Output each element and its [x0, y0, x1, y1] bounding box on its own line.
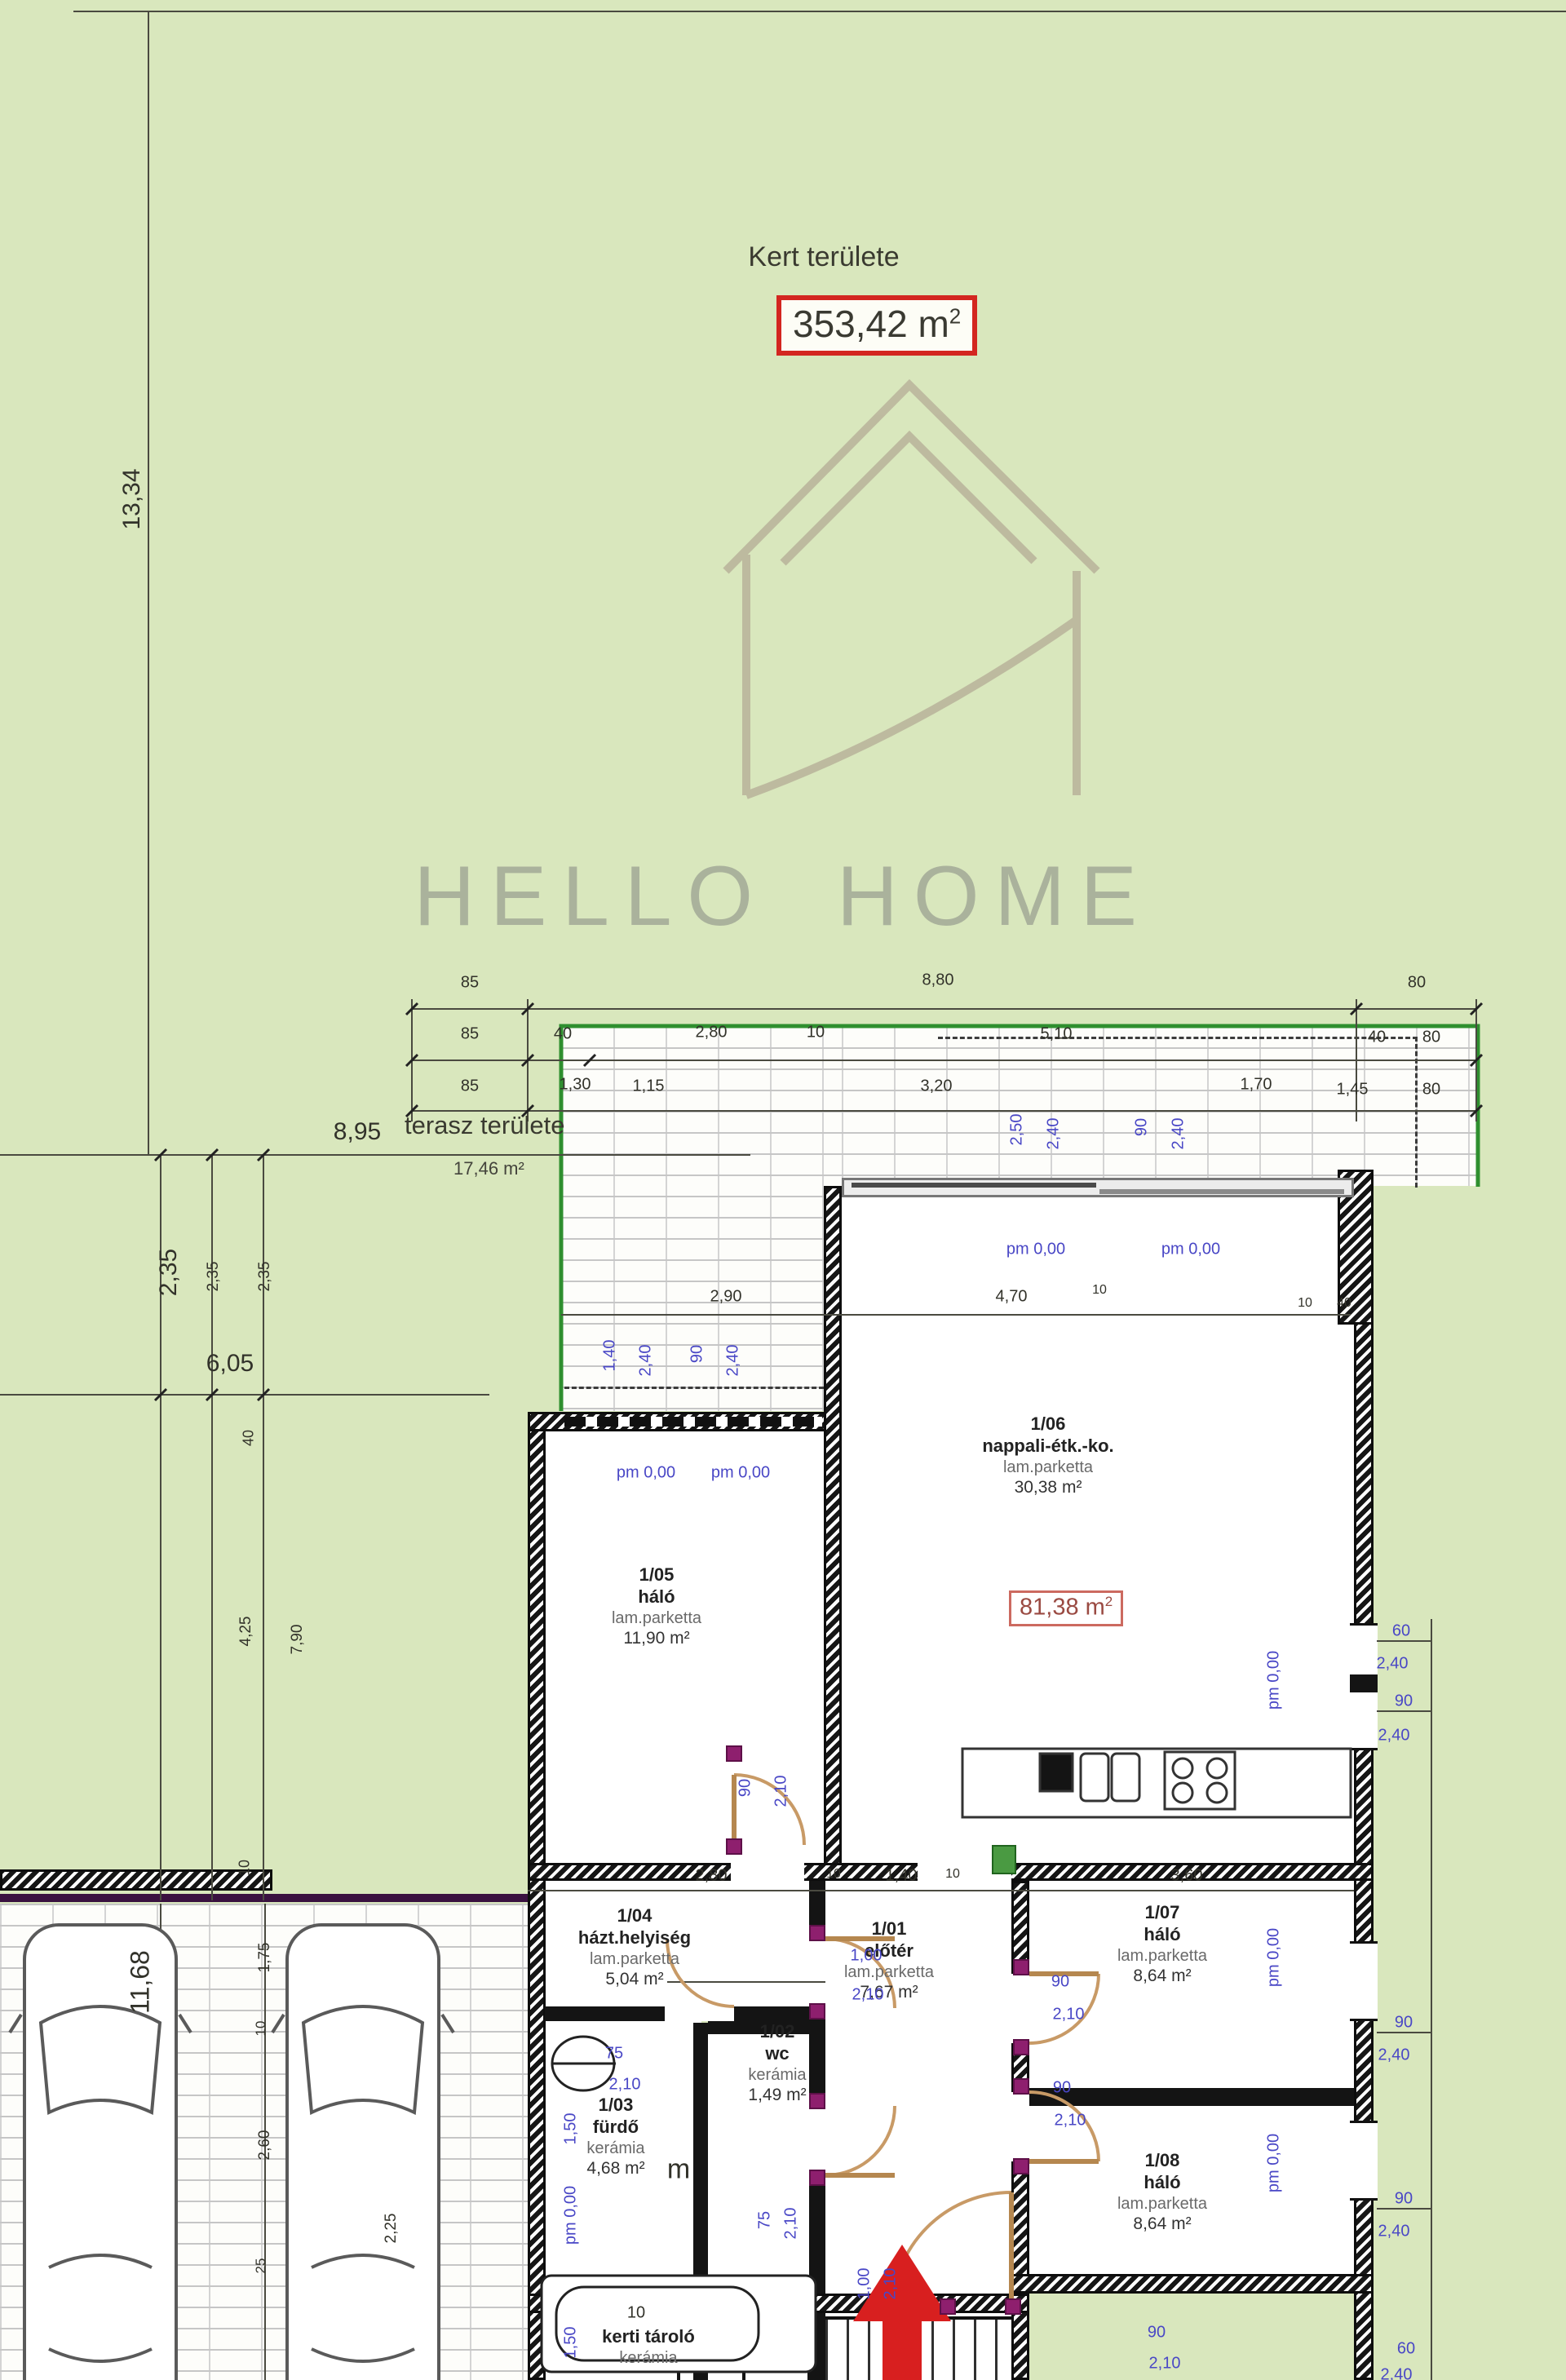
dim-label: 40 [241, 1430, 258, 1446]
door-hinge [726, 1745, 742, 1762]
dim-label: 1,40 [886, 1867, 918, 1886]
room-floor: lam.parketta [1052, 2194, 1272, 2214]
garden-area-value: 353,42 m2 [776, 295, 977, 356]
dim-label: 90 [1395, 2014, 1413, 2033]
dim-label: 3,20 [921, 1077, 953, 1096]
dim-label: 2,40 [1170, 1118, 1188, 1150]
door-hinge [1013, 1959, 1029, 1975]
room-name: előtér [807, 1940, 971, 1962]
room-area: 11,90 m² [571, 1628, 742, 1649]
dim-label: 1,50 [562, 2327, 581, 2359]
room-label-1-02: 1/02 wc kerámia 1,49 m² [716, 2021, 838, 2106]
dim-label: pm 0,00 [1265, 1651, 1284, 1710]
room-name: háló [1052, 2172, 1272, 2194]
door-hinge [809, 2170, 825, 2186]
room-id: 1/05 [571, 1564, 742, 1586]
room-floor: kerámia [716, 2065, 838, 2085]
room-id: 1/06 [930, 1413, 1166, 1436]
dim-label: 10 [945, 1867, 960, 1882]
room-floor: kerámia [563, 2348, 734, 2368]
dim-label: pm 0,00 [562, 2186, 581, 2245]
dim-label: 90 [737, 1779, 755, 1797]
dim-label: 3,60 [1171, 1867, 1203, 1886]
dim-label: 90 [1133, 1118, 1152, 1136]
terrace-area-value: 17,46 m² [453, 1158, 524, 1179]
dim-label: 90 [688, 1345, 707, 1363]
room-area: 5,04 m² [529, 1969, 741, 1990]
room-area: 30,38 m² [930, 1477, 1166, 1498]
dim-label: 10 [1092, 1283, 1107, 1298]
room-label-1-07: 1/07 háló lam.parketta 8,64 m² [1052, 1902, 1272, 1987]
dim-label: 1,50 [562, 2113, 581, 2145]
room-label-storage: kerti tároló kerámia [563, 2326, 734, 2368]
room-name: kerti tároló [563, 2326, 734, 2348]
dim-label: 2,10 [782, 2208, 801, 2240]
dim-label: 7,90 [289, 1625, 307, 1655]
dim-label: 25 [253, 2258, 269, 2274]
door-hinge [1005, 2298, 1021, 2315]
dim-label: 1,70 [1241, 1076, 1272, 1095]
dim-label: 2,40 [724, 1345, 743, 1377]
dim-label: pm 0,00 [711, 1464, 770, 1483]
total-area-number: 81,38 m [1020, 1595, 1105, 1621]
room-name: háló [571, 1586, 742, 1608]
car-left-icon [10, 1925, 191, 2380]
room-id: 1/07 [1052, 1902, 1272, 1924]
door-hinge [726, 1838, 742, 1855]
room-floor: lam.parketta [930, 1458, 1166, 1477]
room-name: wc [716, 2043, 838, 2065]
appliance-icon [1040, 1754, 1073, 1791]
dim-label: 90 [1051, 1973, 1069, 1992]
door-hinge [1013, 2158, 1029, 2174]
dim-label: 2,10 [852, 1986, 884, 2005]
dim-label: 2,90 [710, 1288, 742, 1307]
garden-area-sup: 2 [949, 304, 961, 329]
total-area-sup: 2 [1105, 1594, 1113, 1609]
room-name: háló [1052, 1924, 1272, 1946]
door-hinge [940, 2298, 956, 2315]
room-floor: lam.parketta [529, 1949, 741, 1969]
dim-label: 85 [461, 974, 479, 993]
dim-label: 1,15 [633, 1077, 665, 1096]
dim-label: 90 [1395, 2190, 1413, 2209]
room-id: 1/02 [716, 2021, 838, 2043]
dim-label: 2,10 [1053, 2006, 1085, 2024]
room-name: nappali-étk.-ko. [930, 1436, 1166, 1458]
dim-label: 2,40 [1378, 1727, 1410, 1745]
door-hinge [809, 2003, 825, 2019]
dim-label: pm 0,00 [1265, 2134, 1284, 2192]
sink-bowl-2-icon [1112, 1754, 1139, 1801]
dim-label: 5,10 [1041, 1025, 1073, 1044]
dim-label: 2,80 [696, 1024, 728, 1042]
dim-label: 2,40 [1378, 2223, 1410, 2241]
dim-label: 1,75 [256, 1943, 274, 1973]
dim-label: 2,35 [155, 1249, 183, 1296]
sink-bowl-1-icon [1081, 1754, 1108, 1801]
dim-label: 2,50 [1008, 1114, 1027, 1146]
dim-label: 4,70 [996, 1288, 1028, 1307]
dim-label: 2,40 [1378, 2046, 1410, 2065]
dim-label: 90 [1148, 2324, 1166, 2342]
dim-label: 2,60 [256, 2130, 274, 2161]
dim-label: 2,10 [882, 2268, 900, 2300]
room-area: 8,64 m² [1052, 2214, 1272, 2235]
dim-label: 80 [1408, 974, 1426, 993]
room-label-1-04: 1/04 házt.helyiség lam.parketta 5,04 m² [529, 1905, 741, 1990]
dim-label: 10 [253, 2021, 269, 2037]
dim-label: 85 [461, 1077, 479, 1096]
car-right-icon [272, 1925, 453, 2380]
room-label-1-06: 1/06 nappali-étk.-ko. lam.parketta 30,38… [930, 1413, 1166, 1498]
garden-area-label: Kert területe [689, 241, 958, 273]
dim-label: 90 [1053, 2079, 1071, 2098]
dim-label: 2,10 [1149, 2355, 1181, 2373]
dim-label: 40 [1337, 1296, 1351, 1311]
dim-label: 2,10 [772, 1776, 791, 1807]
dim-label: 8,80 [922, 971, 954, 990]
dim-label: 1,30 [560, 1076, 591, 1095]
room-name: házt.helyiség [529, 1927, 741, 1949]
dim-label: 10 [1298, 1296, 1312, 1311]
dim-label: 10 [237, 1860, 254, 1876]
terrace-area-label: terasz területe [405, 1111, 564, 1140]
dim-label: 10 [807, 1024, 825, 1042]
dim-label: 10 [627, 2304, 645, 2323]
dim-label: 2,40 [1045, 1118, 1064, 1150]
dim-label: 4,25 [237, 1617, 255, 1647]
dim-label: 80 [1422, 1081, 1440, 1099]
dim-label: 75 [756, 2211, 775, 2229]
room-area: 8,64 m² [1052, 1966, 1272, 1987]
dim-label: 2,25 [383, 2214, 400, 2244]
dim-label: 1,45 [1337, 1081, 1369, 1099]
dim-label: m [667, 2154, 690, 2186]
total-area-badge: 81,38 m2 [1009, 1590, 1123, 1626]
dim-label: 2,35 [256, 1262, 274, 1292]
dim-label: 60 [1392, 1622, 1410, 1641]
kitchen-counter [962, 1749, 1351, 1817]
dim-label: 60 [1397, 2340, 1415, 2359]
floor-plan: HELLO HOME [0, 0, 1566, 2380]
dim-label: 13,34 [118, 468, 146, 529]
dim-label: 11,68 [126, 1950, 156, 2014]
dim-label: 2,40 [637, 1345, 656, 1377]
dim-label: 8,95 [334, 1118, 381, 1146]
room-id: 1/08 [1052, 2150, 1272, 2172]
dim-label: 1,40 [601, 1340, 620, 1372]
room-floor: lam.parketta [571, 1608, 742, 1628]
dim-label: 90 [1395, 1692, 1413, 1711]
room-id: 1/01 [807, 1918, 971, 1940]
dim-label: 1,00 [856, 2268, 874, 2300]
dim-label: 80 [1422, 1029, 1440, 1047]
dim-label: 6,05 [206, 1350, 254, 1378]
room-floor: lam.parketta [807, 1962, 971, 1982]
dim-label: 85 [461, 1025, 479, 1044]
room-area: 7,67 m² [807, 1982, 971, 2003]
dim-label: 40 [554, 1025, 572, 1044]
dim-label: 75 [605, 2045, 623, 2064]
dim-label: pm 0,00 [1161, 1241, 1220, 1259]
door-hinge [1013, 2078, 1029, 2095]
dim-label: 2,10 [609, 2076, 641, 2095]
dim-label: 1,00 [851, 1947, 883, 1966]
garden-area-number: 353,42 m [793, 303, 949, 345]
dim-label: 2,40 [1377, 1655, 1409, 1674]
room-label-1-05: 1/05 háló lam.parketta 11,90 m² [571, 1564, 742, 1649]
dim-label: 2,35 [205, 1262, 223, 1292]
room-id: 1/04 [529, 1905, 741, 1927]
dim-label: pm 0,00 [1265, 1928, 1284, 1987]
dim-label: 2,80 [696, 1867, 728, 1886]
dim-label: 2,40 [1381, 2366, 1413, 2380]
dim-label: pm 0,00 [617, 1464, 675, 1483]
room-label-1-01: 1/01 előtér lam.parketta 7,67 m² [807, 1918, 971, 2003]
dim-label: 10 [826, 1867, 841, 1882]
dim-label: pm 0,00 [1006, 1241, 1065, 1259]
entrance-arrow-icon [853, 2245, 951, 2380]
dim-label: 40 [1368, 1029, 1386, 1047]
room-floor: lam.parketta [1052, 1946, 1272, 1966]
dim-label: 2,10 [1055, 2112, 1086, 2130]
door-hinge [1013, 2039, 1029, 2055]
dimension-ticks [155, 1003, 1482, 1400]
room-label-1-08: 1/08 háló lam.parketta 8,64 m² [1052, 2150, 1272, 2235]
room-area: 1,49 m² [716, 2085, 838, 2106]
